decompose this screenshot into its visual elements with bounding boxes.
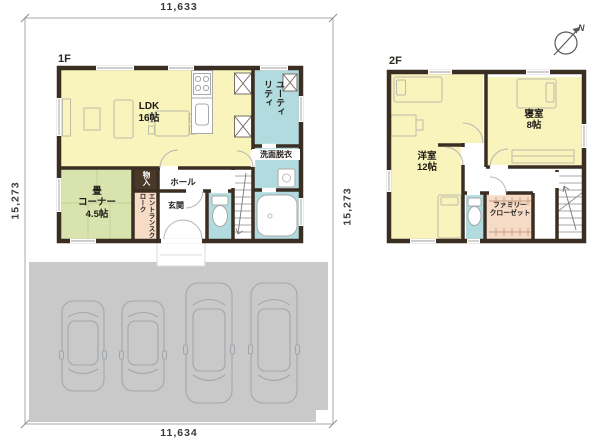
stairs-1f [235, 173, 252, 234]
stairs-2f [557, 176, 583, 232]
label-family-closet: ファミリー クローゼット [487, 202, 533, 219]
dimension-right: 15,273 [342, 177, 355, 237]
car-icon [184, 283, 235, 403]
label-entrance: 玄関 [160, 200, 192, 211]
toilet-fixture-1f [212, 196, 228, 227]
dimension-left: 15,273 [10, 171, 23, 231]
label-hall: ホール [160, 176, 206, 188]
entrance-porch [157, 241, 205, 266]
label-washroom: 洗面脱衣 [252, 149, 300, 160]
compass-icon [554, 27, 580, 55]
car-icon [249, 283, 300, 403]
dimension-bottom: 11,634 [25, 427, 333, 439]
floor-plan-canvas: 11,633 11,634 15,273 15,273 1F 2F LDK 16… [0, 0, 600, 445]
parking-area [29, 262, 328, 422]
label-entrance-cloak: エントランスクローク [137, 193, 155, 240]
dimension-top: 11,633 [25, 1, 333, 13]
label-bedroom: 寝室 8帖 [507, 109, 561, 132]
car-icon [120, 301, 167, 391]
label-ldk: LDK 16帖 [118, 101, 180, 125]
car-icon [60, 301, 107, 391]
label-storage: 物入 [142, 171, 151, 191]
label-western-room: 洋室 12帖 [401, 151, 453, 174]
toilet-fixture-2f [468, 198, 481, 226]
washbasin [278, 169, 295, 187]
label-tatami-corner: 畳 コーナー 4.5帖 [66, 186, 128, 220]
bathtub [257, 195, 297, 236]
label-utility: ユーティリティ [262, 80, 286, 124]
parking-notch [316, 410, 328, 422]
compass-north-label: N [578, 23, 585, 33]
floor-plan-graphics [0, 0, 600, 445]
kitchen-counter [192, 71, 213, 134]
floor-label-2f: 2F [389, 55, 402, 67]
floor-label-1f: 1F [58, 53, 71, 65]
